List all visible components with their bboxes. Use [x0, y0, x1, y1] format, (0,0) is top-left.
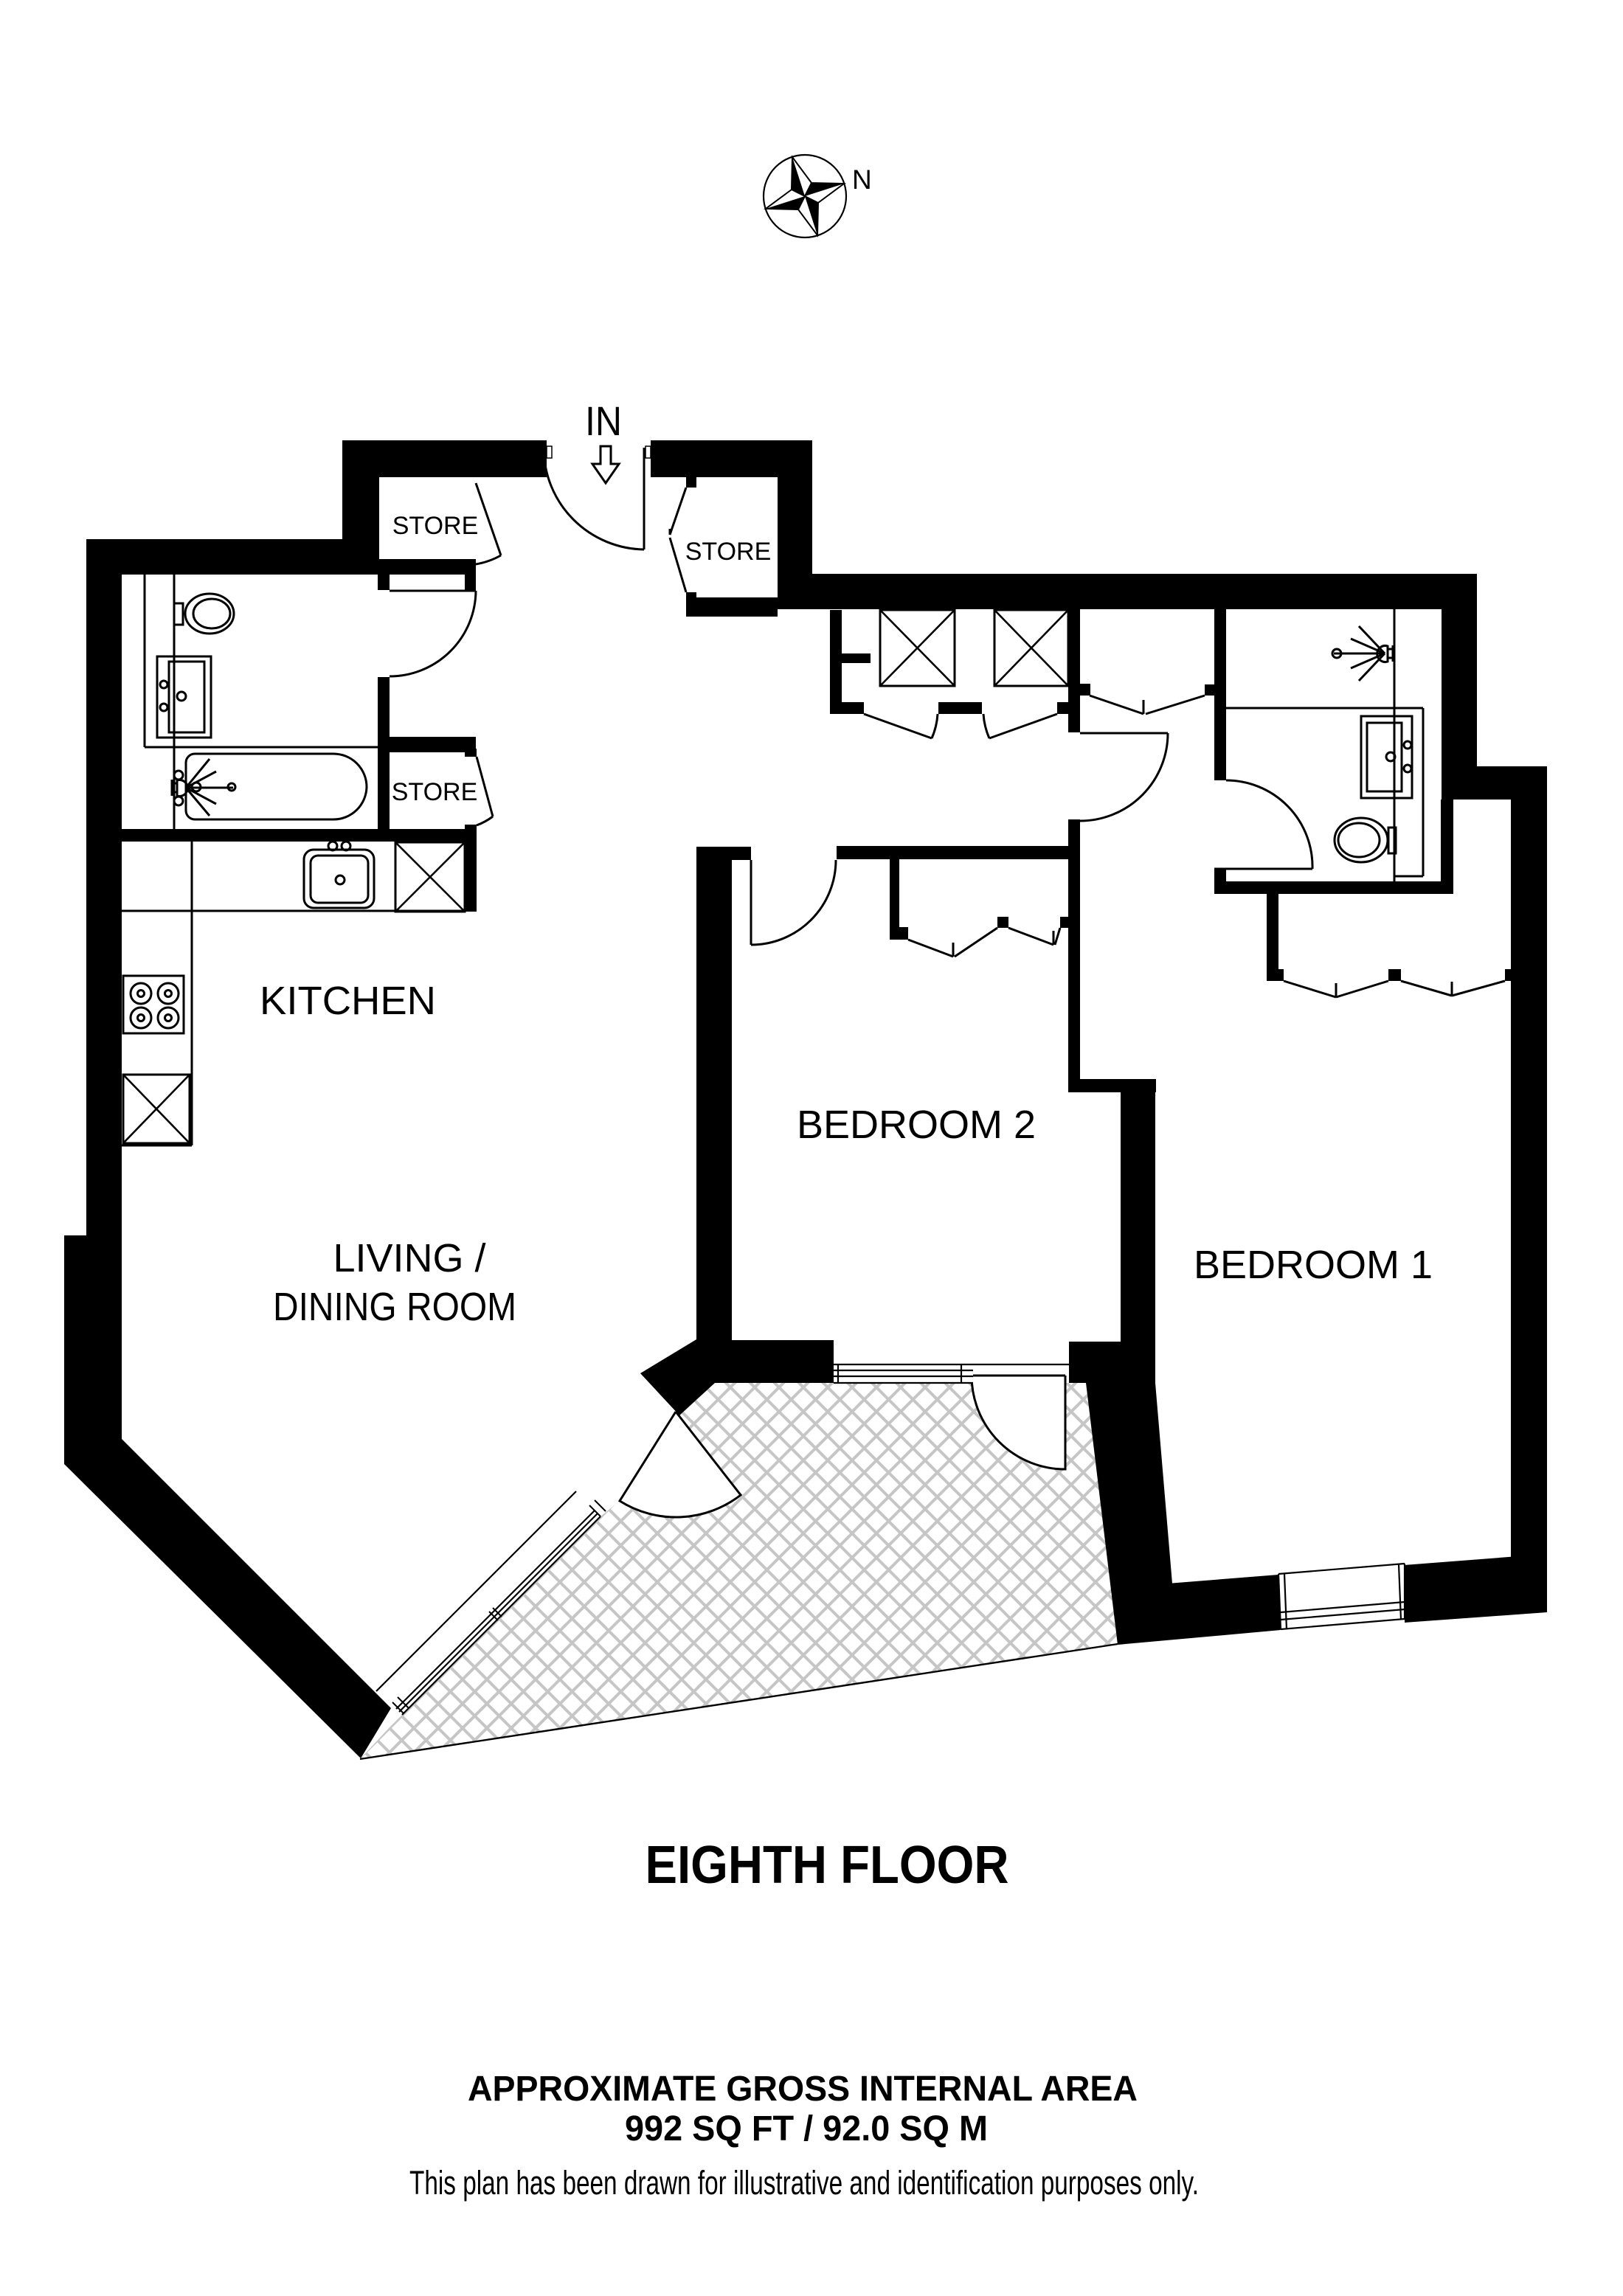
svg-text:EIGHTH FLOOR: EIGHTH FLOOR — [646, 1836, 1009, 1895]
svg-text:KITCHEN: KITCHEN — [260, 979, 436, 1023]
svg-text:DINING ROOM: DINING ROOM — [273, 1285, 516, 1329]
svg-text:APPROXIMATE GROSS INTERNAL ARE: APPROXIMATE GROSS INTERNAL AREA — [468, 2070, 1138, 2109]
svg-text:STORE: STORE — [392, 778, 478, 806]
svg-text:N: N — [852, 164, 872, 195]
svg-text:992 SQ FT / 92.0 SQ M: 992 SQ FT / 92.0 SQ M — [625, 2109, 988, 2148]
svg-text:STORE: STORE — [685, 538, 772, 566]
svg-text:LIVING /: LIVING / — [333, 1236, 485, 1280]
svg-text:BEDROOM 1: BEDROOM 1 — [1194, 1243, 1433, 1287]
svg-text:BEDROOM 2: BEDROOM 2 — [797, 1103, 1036, 1147]
svg-text:STORE: STORE — [392, 512, 479, 540]
svg-text:This plan has been drawn for i: This plan has been drawn for illustrativ… — [409, 2164, 1199, 2202]
svg-text:IN: IN — [585, 398, 622, 444]
